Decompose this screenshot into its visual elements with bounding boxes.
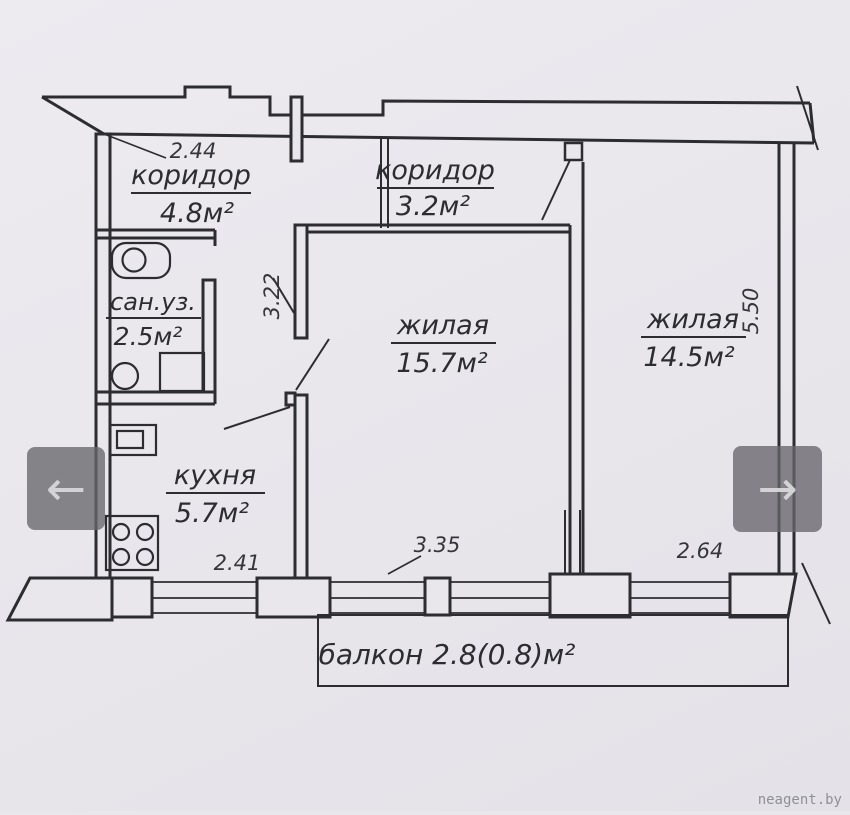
bottom-pier-a: [112, 578, 152, 617]
site-watermark: neagent.by: [758, 792, 842, 808]
tick-top-right: [797, 86, 818, 150]
leader-living-main-width: [388, 556, 421, 574]
window-living-main-right: [450, 582, 550, 613]
window-living-main-left: [330, 582, 425, 613]
dim-living-main-width: 3.35: [414, 533, 461, 557]
corridor-inner-name: коридор: [375, 155, 495, 186]
floor-plan-drawing: коридор 4.8м² коридор 3.2м² сан.уз. 2.5м…: [0, 0, 850, 811]
bottom-pier-small: [425, 578, 450, 615]
bottom-left-foot: [8, 578, 112, 620]
kitchen-partition-upper: [295, 225, 307, 338]
corridor-stub-wall: [291, 97, 302, 161]
arrow-right-icon: →: [757, 465, 797, 513]
bottom-pier-balcony-door: [550, 574, 630, 617]
kitchen-partition-lower: [295, 395, 307, 578]
kitchen-name: кухня: [174, 460, 256, 491]
door-swing-living-main: [296, 339, 329, 390]
dim-living-main-depth: 3.22: [260, 273, 284, 320]
entry-chamfer-wall: [42, 97, 104, 134]
door-swing-living-second: [542, 160, 570, 220]
photo-viewer: коридор 4.8м² коридор 3.2м² сан.уз. 2.5м…: [0, 0, 850, 811]
prev-photo-button[interactable]: ←: [27, 447, 105, 530]
corridor-entry-name: коридор: [131, 160, 251, 191]
bathroom-area: 2.5м²: [114, 322, 183, 351]
leader-entry: [104, 134, 166, 158]
corridor-entry-area: 4.8м²: [160, 198, 234, 229]
dim-living-second-depth: 5.50: [739, 288, 763, 335]
bathroom-bottom-wall: [96, 392, 215, 404]
dim-kitchen-width: 2.41: [214, 551, 261, 575]
stove-fixture: [106, 516, 158, 570]
kitchen-sink-fixture: [110, 425, 156, 455]
bathroom-name: сан.уз.: [110, 288, 196, 316]
tick-bottom-right: [802, 563, 830, 624]
door-swing-kitchen: [224, 407, 290, 429]
rooms-divider-wall: [570, 162, 583, 573]
arrow-left-icon: ←: [46, 465, 86, 513]
door-hinge-block: [565, 143, 582, 160]
window-kitchen: [152, 582, 257, 613]
balcony-label: балкон 2.8(0.8)м²: [319, 638, 576, 671]
living-main-area: 15.7м²: [396, 348, 487, 379]
living-main-top-wall: [302, 225, 570, 232]
dim-living-second-width: 2.64: [677, 539, 724, 563]
bottom-pier-right: [730, 574, 796, 617]
kitchen-partition-notch: [286, 393, 295, 405]
window-living-second: [630, 582, 730, 613]
kitchen-area: 5.7м²: [175, 498, 249, 529]
bottom-pier-b: [257, 578, 330, 617]
living-main-name: жилая: [396, 310, 489, 341]
toilet-fixture: [112, 243, 170, 278]
next-photo-button[interactable]: →: [733, 446, 822, 532]
balcony-door-frame: [565, 510, 580, 574]
living-second-area: 14.5м²: [643, 342, 734, 373]
dim-entry-width: 2.44: [170, 139, 217, 163]
washbasin-fixture: [112, 353, 204, 391]
top-wall-outer: [42, 87, 810, 115]
living-second-name: жилая: [646, 304, 739, 335]
corridor-inner-area: 3.2м²: [396, 191, 470, 222]
